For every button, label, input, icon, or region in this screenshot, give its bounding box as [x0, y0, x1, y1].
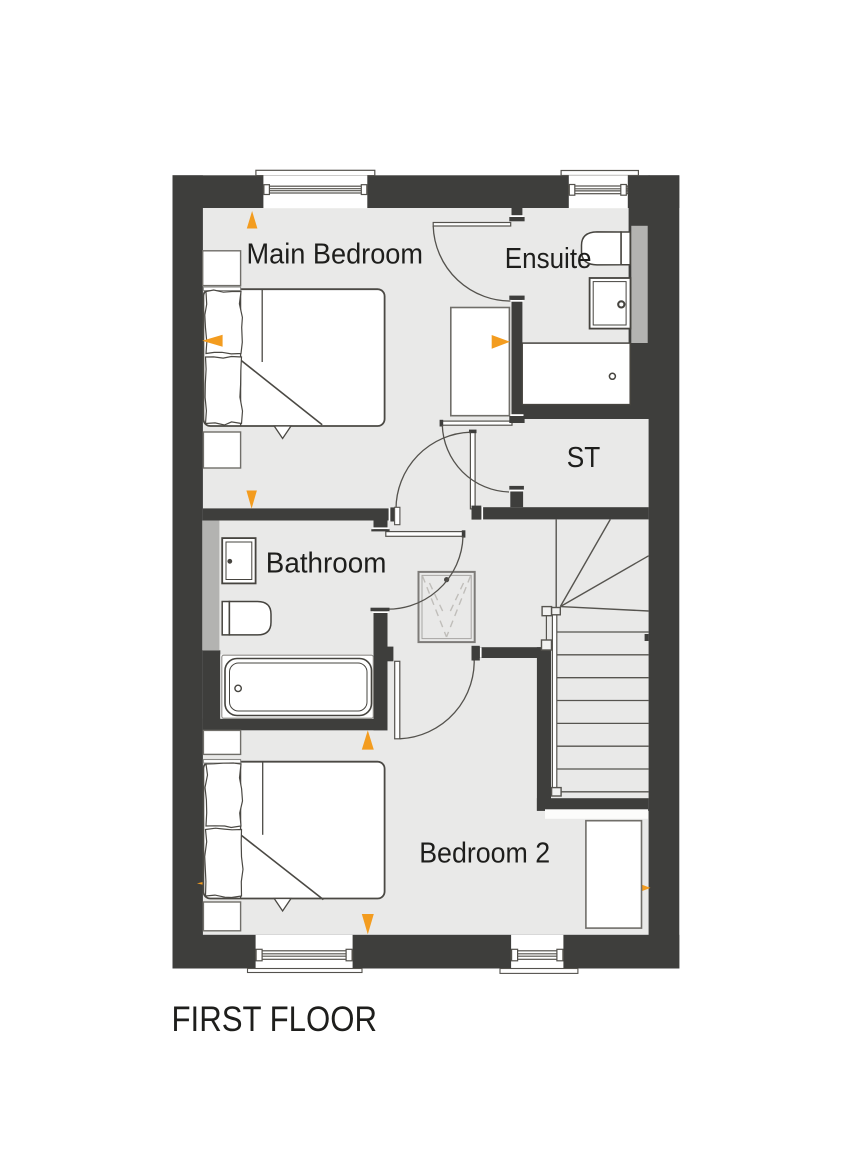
- svg-text:Bedroom 2: Bedroom 2: [419, 838, 550, 870]
- svg-text:FIRST FLOOR: FIRST FLOOR: [172, 1000, 378, 1039]
- svg-text:Ensuite: Ensuite: [505, 243, 592, 275]
- svg-text:Bathroom: Bathroom: [266, 547, 387, 579]
- svg-text:ST: ST: [567, 442, 601, 474]
- svg-text:Main Bedroom: Main Bedroom: [247, 239, 424, 271]
